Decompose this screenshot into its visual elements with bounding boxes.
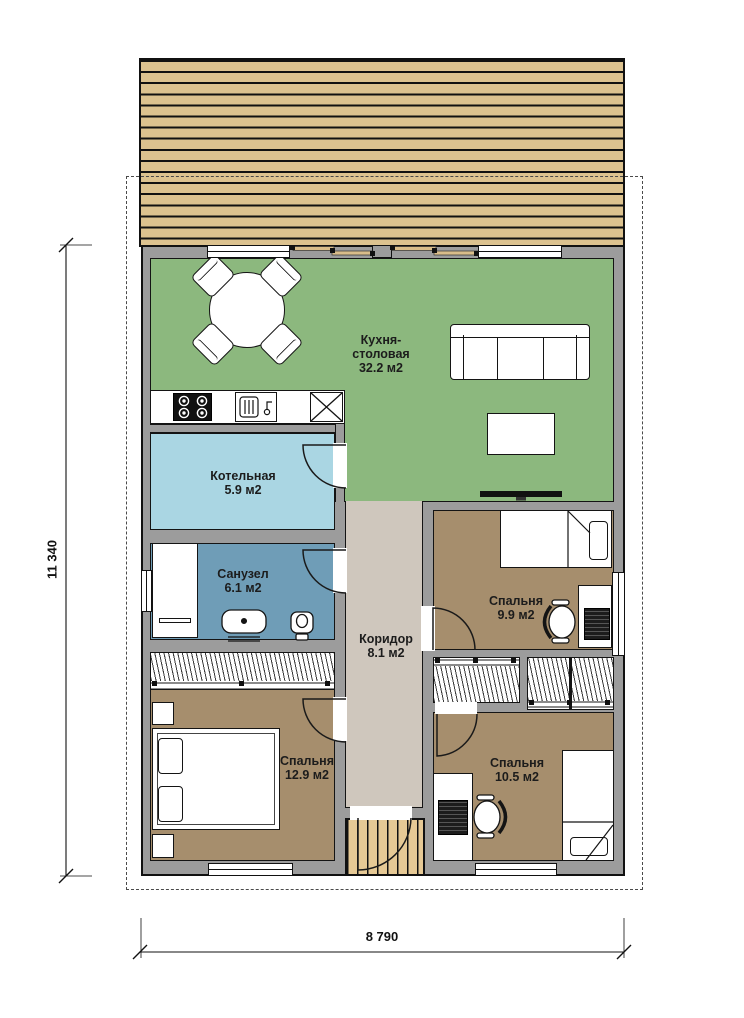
sofa-back xyxy=(451,325,589,338)
wardrobe-bedroom-left xyxy=(150,652,335,690)
label-bedroom-left: Спальня 12.9 м2 xyxy=(247,754,367,782)
door-opening-entrance xyxy=(350,806,412,820)
window-bedroom-right-top xyxy=(612,572,625,656)
computer xyxy=(584,608,610,640)
door-opening-boiler xyxy=(333,443,347,488)
label-bedroom-area: 12.9 м2 xyxy=(247,768,367,782)
pillow xyxy=(158,786,183,822)
wardrobe-hatch xyxy=(151,653,334,681)
label-kitchen-line1: Кухня- xyxy=(321,333,441,347)
label-kitchen-line2: столовая xyxy=(321,347,441,361)
label-corridor: Коридор 8.1 м2 xyxy=(336,632,436,660)
computer xyxy=(438,800,468,835)
wardrobe-divider xyxy=(569,657,572,710)
nightstand xyxy=(152,834,174,858)
label-bedroom-right-bottom: Спальня 10.5 м2 xyxy=(457,756,577,784)
window-glass-line xyxy=(146,571,147,611)
entrance-porch xyxy=(345,818,425,876)
label-bedroom-name: Спальня xyxy=(247,754,367,768)
label-bedroom-right-top: Спальня 9.9 м2 xyxy=(456,594,576,622)
window-glass-line xyxy=(479,251,561,252)
label-bedroom-name: Спальня xyxy=(457,756,577,770)
sofa-armrest xyxy=(451,335,464,379)
label-bedroom-name: Спальня xyxy=(456,594,576,608)
floor-plan: Кухня- столовая 32.2 м2 Котельная 5.9 м2… xyxy=(0,0,744,1018)
label-bedroom-area: 10.5 м2 xyxy=(457,770,577,784)
label-boiler-area: 5.9 м2 xyxy=(183,483,303,497)
kitchen-cabinet xyxy=(310,392,343,422)
label-corridor-name: Коридор xyxy=(336,632,436,646)
kitchen-sink xyxy=(235,392,277,422)
label-bathroom: Санузел 6.1 м2 xyxy=(183,567,303,595)
wardrobe-bedroom-right-top xyxy=(433,657,520,703)
dimension-width: 8 790 xyxy=(347,929,417,944)
window-kitchen-top-left xyxy=(207,245,290,258)
shower-drain-line xyxy=(159,618,191,623)
label-bathroom-area: 6.1 м2 xyxy=(183,581,303,595)
label-bedroom-area: 9.9 м2 xyxy=(456,608,576,622)
coffee-table xyxy=(487,413,555,455)
sofa-armrest xyxy=(576,335,589,379)
pillow xyxy=(570,837,608,856)
sofa-cushion-divider xyxy=(543,337,544,379)
window-glass-line xyxy=(476,869,556,870)
door-opening-bedroom-right-bottom xyxy=(435,702,477,714)
label-kitchen: Кухня- столовая 32.2 м2 xyxy=(321,333,441,375)
single-bed xyxy=(500,510,612,568)
sofa-cushion-divider xyxy=(497,337,498,379)
label-kitchen-area: 32.2 м2 xyxy=(321,361,441,375)
wall-below-counter xyxy=(150,424,345,433)
label-boiler: Котельная 5.9 м2 xyxy=(183,469,303,497)
window-glass-line xyxy=(208,251,289,252)
wall-pier-top xyxy=(372,245,392,258)
pillow xyxy=(158,738,183,774)
door-opening-bathroom xyxy=(333,548,347,593)
pillow xyxy=(589,521,608,560)
nightstand xyxy=(152,702,174,725)
label-bathroom-name: Санузел xyxy=(183,567,303,581)
window-glass-line xyxy=(209,869,292,870)
sofa xyxy=(450,324,590,380)
window-bedroom-right-bottom xyxy=(475,863,557,876)
window-bedroom-left-bottom xyxy=(208,863,293,876)
wardrobe-hatch xyxy=(434,666,519,702)
label-boiler-name: Котельная xyxy=(183,469,303,483)
stove xyxy=(173,393,212,421)
window-living-top-right xyxy=(478,245,562,258)
label-corridor-area: 8.1 м2 xyxy=(336,646,436,660)
door-opening-bedroom-left xyxy=(333,697,347,741)
window-bathroom-left xyxy=(141,570,152,612)
dimension-height: 11 340 xyxy=(45,525,60,595)
window-glass-line xyxy=(618,573,619,655)
